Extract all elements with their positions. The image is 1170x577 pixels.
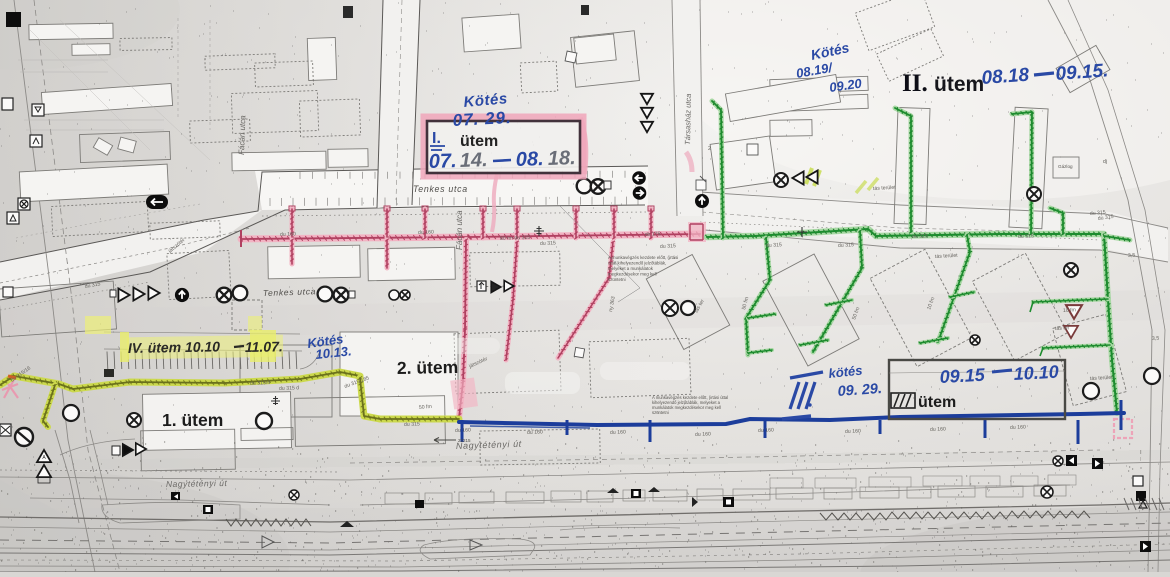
svg-text:du 160: du 160 [845, 428, 861, 435]
svg-text:dj: dj [1103, 159, 1107, 165]
svg-text:I.: I. [432, 130, 441, 147]
svg-text:Nagytétényi út: Nagytétényi út [166, 478, 228, 489]
svg-text:du 160: du 160 [610, 429, 626, 436]
svg-text:du 160: du 160 [930, 426, 946, 433]
svg-text:2: 2 [708, 146, 711, 152]
svg-text:du 315: du 315 [540, 240, 556, 247]
svg-text:du 160: du 160 [758, 427, 774, 434]
svg-text:ds 175: ds 175 [645, 231, 661, 238]
svg-text:ütem: ütem [918, 394, 956, 411]
svg-text:18.: 18. [547, 147, 576, 170]
svg-text:du 160: du 160 [280, 231, 296, 238]
svg-text:11.07.: 11.07. [245, 338, 283, 355]
svg-text:07.: 07. [428, 150, 457, 173]
svg-text:10.10: 10.10 [1013, 362, 1059, 384]
svg-text:3,5: 3,5 [1152, 336, 1160, 342]
svg-text:szüntetni: szüntetni [652, 410, 669, 415]
svg-text:2. ütem: 2. ütem [397, 357, 459, 378]
svg-text:du 315: du 315 [912, 233, 928, 240]
svg-text:du 160: du 160 [695, 431, 711, 438]
svg-text:úttal kihelyezendő jelzőtáblák: úttal kihelyezendő jelzőtáblák, [608, 261, 666, 266]
svg-text:50 fm: 50 fm [419, 404, 432, 411]
svg-text:tás ter: tás ter [1055, 325, 1070, 332]
svg-text:09.15.: 09.15. [1055, 60, 1109, 85]
svg-text:du 160: du 160 [418, 229, 434, 236]
svg-text:09.15: 09.15 [939, 365, 986, 387]
svg-text:du 315: du 315 [404, 421, 420, 428]
svg-text:megkezdésekor meg kell: megkezdésekor meg kell [608, 272, 657, 277]
svg-text:melyeket a munkálatok: melyeket a munkálatok [608, 266, 654, 271]
svg-text:10 fm: 10 fm [1063, 307, 1076, 314]
svg-text:Fácán utca: Fácán utca [237, 115, 247, 155]
svg-text:A munkavégzés kezdete előtt, (: A munkavégzés kezdete előtt, (irtási [608, 255, 678, 260]
svg-text:ütem: ütem [934, 73, 984, 96]
svg-text:07. 29.: 07. 29. [452, 108, 512, 130]
svg-text:Tenkes utca: Tenkes utca [263, 286, 317, 298]
svg-text:14.: 14. [459, 149, 488, 172]
svg-text:tás terület: tás terület [935, 253, 959, 260]
svg-text:du 160: du 160 [455, 427, 471, 434]
svg-text:08.: 08. [515, 148, 544, 171]
svg-text:du 315: du 315 [1018, 233, 1034, 240]
svg-text:Társasház utca: Társasház utca [683, 94, 693, 145]
svg-text:du 315/4: du 315/4 [250, 380, 271, 387]
svg-text:Tenkes utca: Tenkes utca [413, 184, 468, 194]
svg-text:IV. ütem 10.10: IV. ütem 10.10 [128, 338, 221, 356]
svg-text:du 315: du 315 [766, 242, 782, 249]
svg-text:1. ütem: 1. ütem [162, 410, 223, 430]
svg-text:Gázlog: Gázlog [1058, 164, 1073, 169]
svg-text:80 fm du 315: 80 fm du 315 [500, 235, 531, 242]
svg-text:du 315: du 315 [838, 242, 854, 249]
svg-text:du 160: du 160 [1010, 424, 1026, 431]
svg-text:du 315 d: du 315 d [279, 385, 300, 392]
svg-text:ütem: ütem [460, 133, 498, 150]
svg-text:szüntetni: szüntetni [608, 277, 626, 282]
svg-text:08.18: 08.18 [981, 65, 1030, 89]
svg-text:II.: II. [902, 70, 928, 97]
svg-text:tás terület: tás terület [1090, 375, 1114, 382]
svg-text:09. 29.: 09. 29. [837, 381, 882, 400]
svg-text:3,5: 3,5 [1128, 253, 1136, 259]
svg-text:tás terület: tás terület [873, 185, 897, 192]
svg-text:du 160: du 160 [527, 429, 543, 436]
svg-text:Fácán utca: Fácán utca [455, 210, 464, 250]
svg-text:du 315: du 315 [660, 243, 676, 250]
